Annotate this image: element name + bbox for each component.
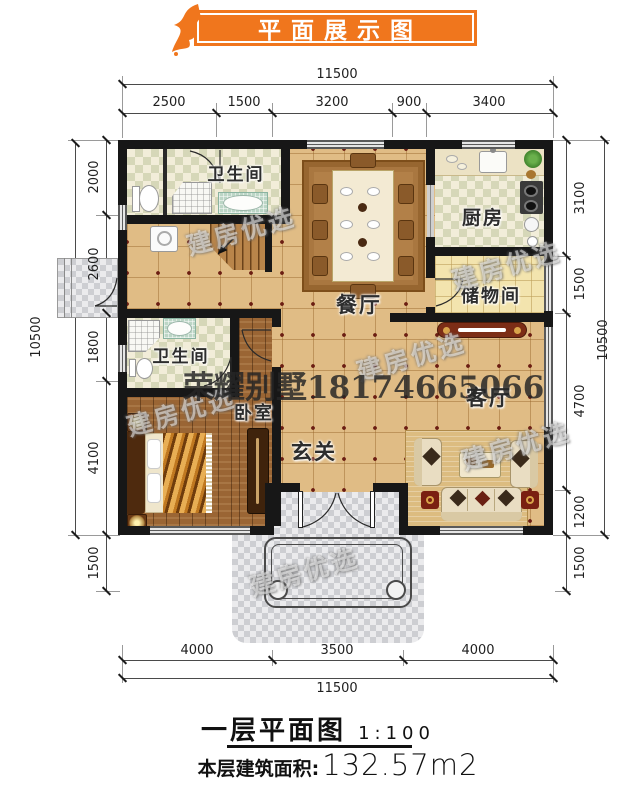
dragon-decoration-icon	[168, 2, 202, 58]
floor-plan-page: 平面展示图	[0, 0, 640, 786]
front-door-arc-right	[338, 493, 371, 527]
watermark-phone: 荣耀别墅18174665066	[183, 362, 544, 407]
room-label-dining: 餐厅	[336, 289, 382, 319]
title-banner: 平面展示图	[194, 10, 477, 46]
page-title: 平面展示图	[248, 11, 423, 45]
room-label-hall: 玄关	[291, 436, 337, 466]
room-label-bathroom-top: 卫生间	[208, 160, 265, 185]
bedroom-door-arc	[242, 330, 271, 361]
front-door-arc-left	[303, 493, 336, 527]
side-door-arc	[95, 278, 117, 306]
room-label-kitchen: 厨房	[462, 203, 504, 230]
